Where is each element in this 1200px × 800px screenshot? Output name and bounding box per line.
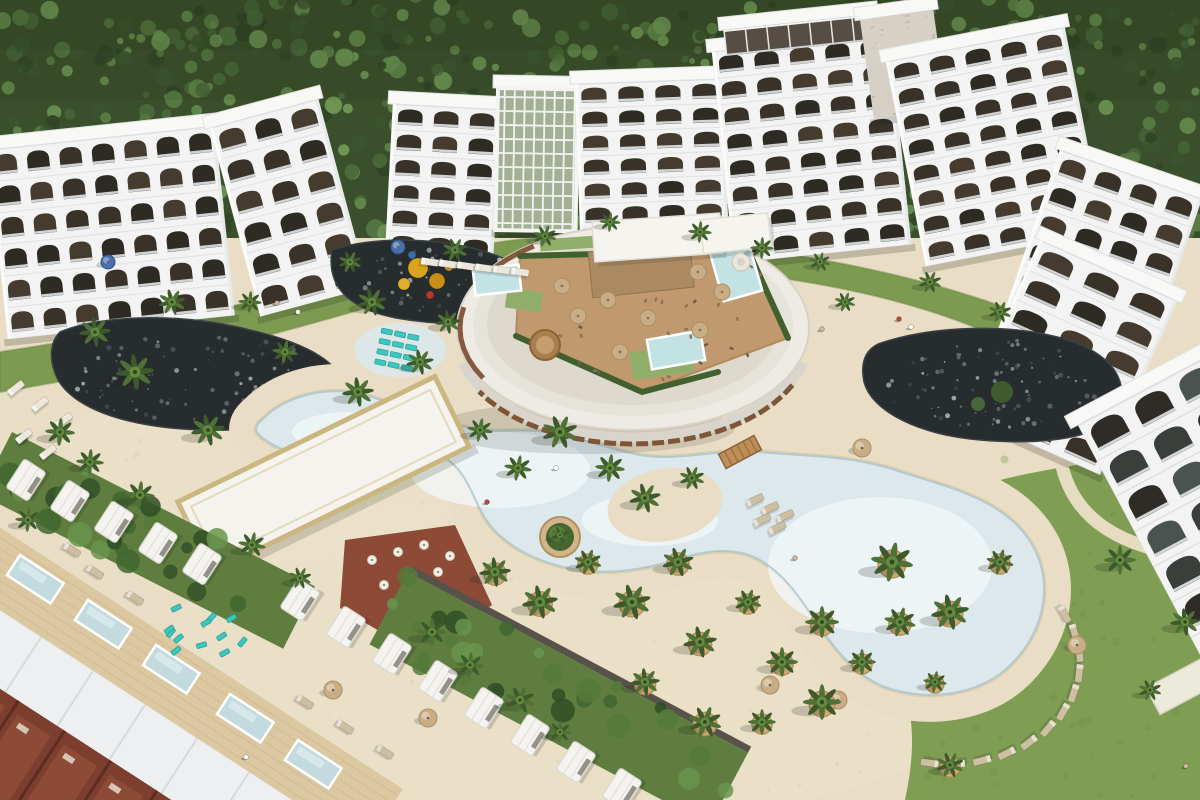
resort-aerial-rendering <box>0 0 1200 800</box>
resort-rendering-stage <box>0 0 1200 800</box>
